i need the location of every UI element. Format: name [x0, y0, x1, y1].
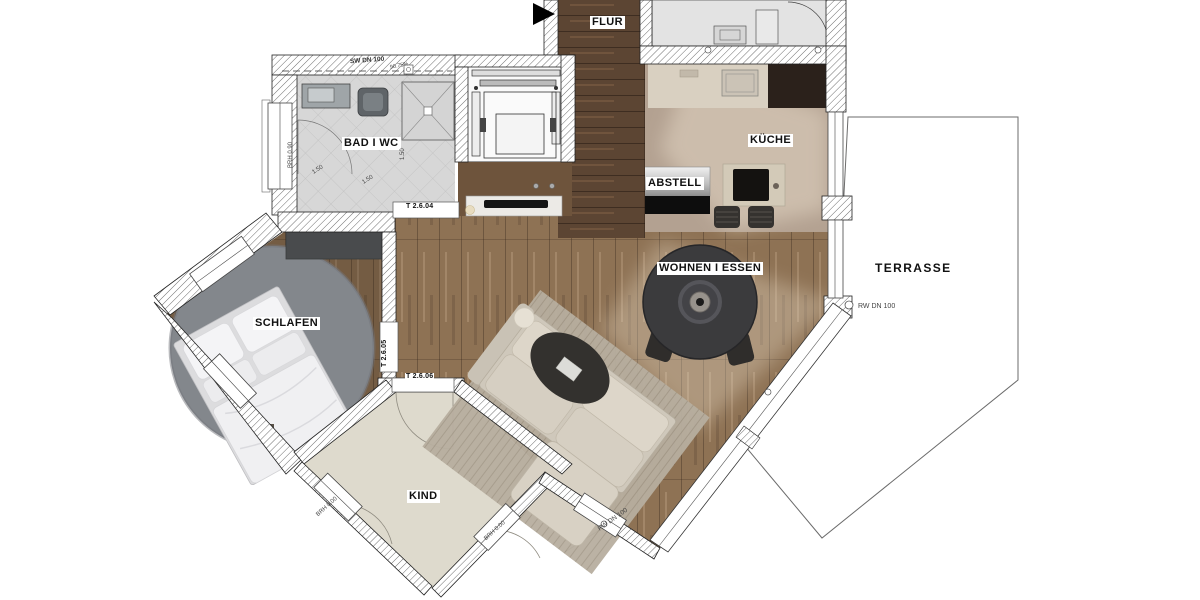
kitchen-area	[643, 64, 828, 232]
sideboard	[458, 162, 572, 216]
abstell-cabinet	[643, 167, 710, 214]
wardrobe	[286, 232, 386, 259]
neighbour-unit	[652, 0, 830, 46]
room-label-bad-wc: BAD I WC	[342, 137, 401, 150]
entrance-marker-icon	[533, 3, 555, 25]
sill-label-bad: BRH 0.90	[288, 142, 294, 168]
annotation-rw-pipe-terrace: RW DN 100	[858, 303, 895, 310]
room-label-schlafen: SCHLAFEN	[253, 317, 320, 330]
room-label-terrasse: TERRASSE	[873, 262, 954, 276]
elevator-shaft	[467, 64, 563, 162]
room-label-abstell: ABSTELL	[646, 177, 704, 190]
room-label-kueche: KÜCHE	[748, 134, 793, 147]
room-label-flur: FLUR	[590, 16, 625, 29]
door-label-t2605: T 2.6.05	[381, 339, 389, 368]
kitchen-tall-cabinet	[768, 64, 826, 108]
floor-plan: FLUR BAD I WC KÜCHE ABSTELL WOHNEN I ESS…	[0, 0, 1200, 600]
door-label-t2604: T 2.6.04	[405, 203, 434, 211]
room-label-kind: KIND	[407, 490, 440, 503]
room-label-wohnen-essen: WOHNEN I ESSEN	[657, 262, 763, 275]
cooktop	[733, 169, 769, 201]
door-label-t2606: T 2.6.06	[405, 373, 434, 381]
dim-label-c: 1.50	[400, 148, 406, 160]
floor-plan-drawing	[0, 0, 1200, 600]
